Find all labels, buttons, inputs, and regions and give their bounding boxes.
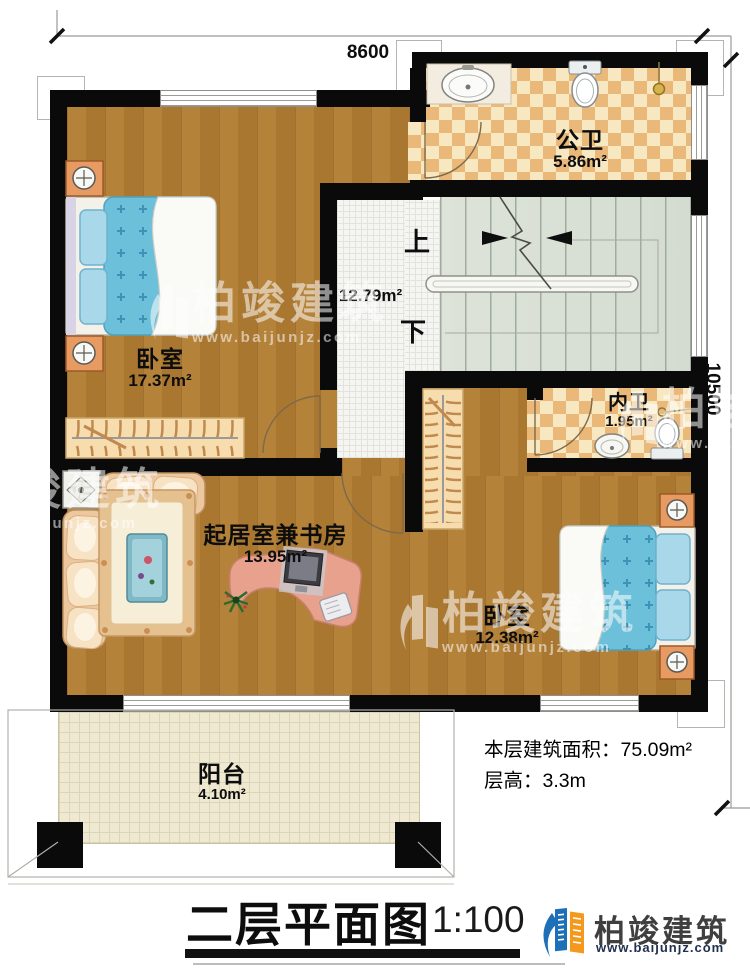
nightstand [66, 161, 103, 196]
room-area: 12.38m² [452, 629, 562, 648]
drawing-scale: 1:100 [432, 899, 525, 941]
stairs-up-label: 上 [404, 222, 430, 259]
room-area: 1.95m² [590, 414, 668, 431]
room-name: 阳台 [172, 762, 272, 787]
bed [66, 197, 216, 335]
room-area: 13.95m² [178, 548, 373, 567]
toilet-icon [569, 61, 601, 107]
room-area: 4.10m² [172, 787, 272, 804]
wardrobe [423, 389, 463, 529]
floor-area-note: 本层建筑面积：75.09m² [484, 735, 692, 766]
bed [560, 526, 695, 650]
room-area: 17.37m² [105, 372, 215, 391]
shower-icon [654, 62, 665, 95]
brand-url: www.baijunjz.com [596, 940, 724, 955]
room-label-living-study: 起居室兼书房 13.95m² [178, 523, 373, 567]
room-name: 起居室兼书房 [178, 523, 373, 548]
room-label-bedroom1: 卧室 17.37m² [105, 347, 215, 391]
stairs-down-label: 下 [400, 312, 426, 349]
dimension-width: 8600 [328, 42, 408, 64]
wardrobe [66, 418, 244, 458]
room-area: 12.79m² [328, 287, 413, 306]
title-underline-thin [193, 963, 565, 965]
room-name: 卧室 [452, 604, 562, 629]
stair-hall-area: 12.79m² [328, 287, 413, 306]
room-name: 公卫 [530, 128, 630, 153]
nightstand [660, 646, 694, 679]
stair-handrail [426, 276, 638, 292]
nightstand [660, 494, 694, 527]
side-table [63, 471, 100, 508]
sink-icon [595, 434, 629, 458]
room-area: 5.86m² [530, 153, 630, 172]
room-name: 卧室 [105, 347, 215, 372]
room-label-public-bath: 公卫 5.86m² [530, 128, 630, 172]
room-label-inner-bath: 内卫 1.95m² [590, 392, 668, 431]
room-label-bedroom2: 卧室 12.38m² [452, 604, 562, 648]
floor-notes: 本层建筑面积：75.09m² 层高：3.3m [484, 735, 692, 797]
brand-logo-icon [538, 903, 592, 963]
nightstand [66, 336, 103, 371]
stair-break-line [482, 197, 572, 289]
room-label-balcony: 阳台 4.10m² [172, 762, 272, 804]
title-underline [185, 949, 520, 958]
floor-plan-page: 8600 10500 公卫 5.86m² 12.79m² 上 下 卧室 17.3… [0, 0, 750, 973]
drawing-title: 二层平面图 [186, 886, 431, 955]
room-name: 内卫 [590, 392, 668, 414]
dimension-height: 10500 [701, 349, 723, 429]
plan-overlay [0, 0, 750, 973]
floor-height-note: 层高：3.3m [484, 766, 692, 797]
